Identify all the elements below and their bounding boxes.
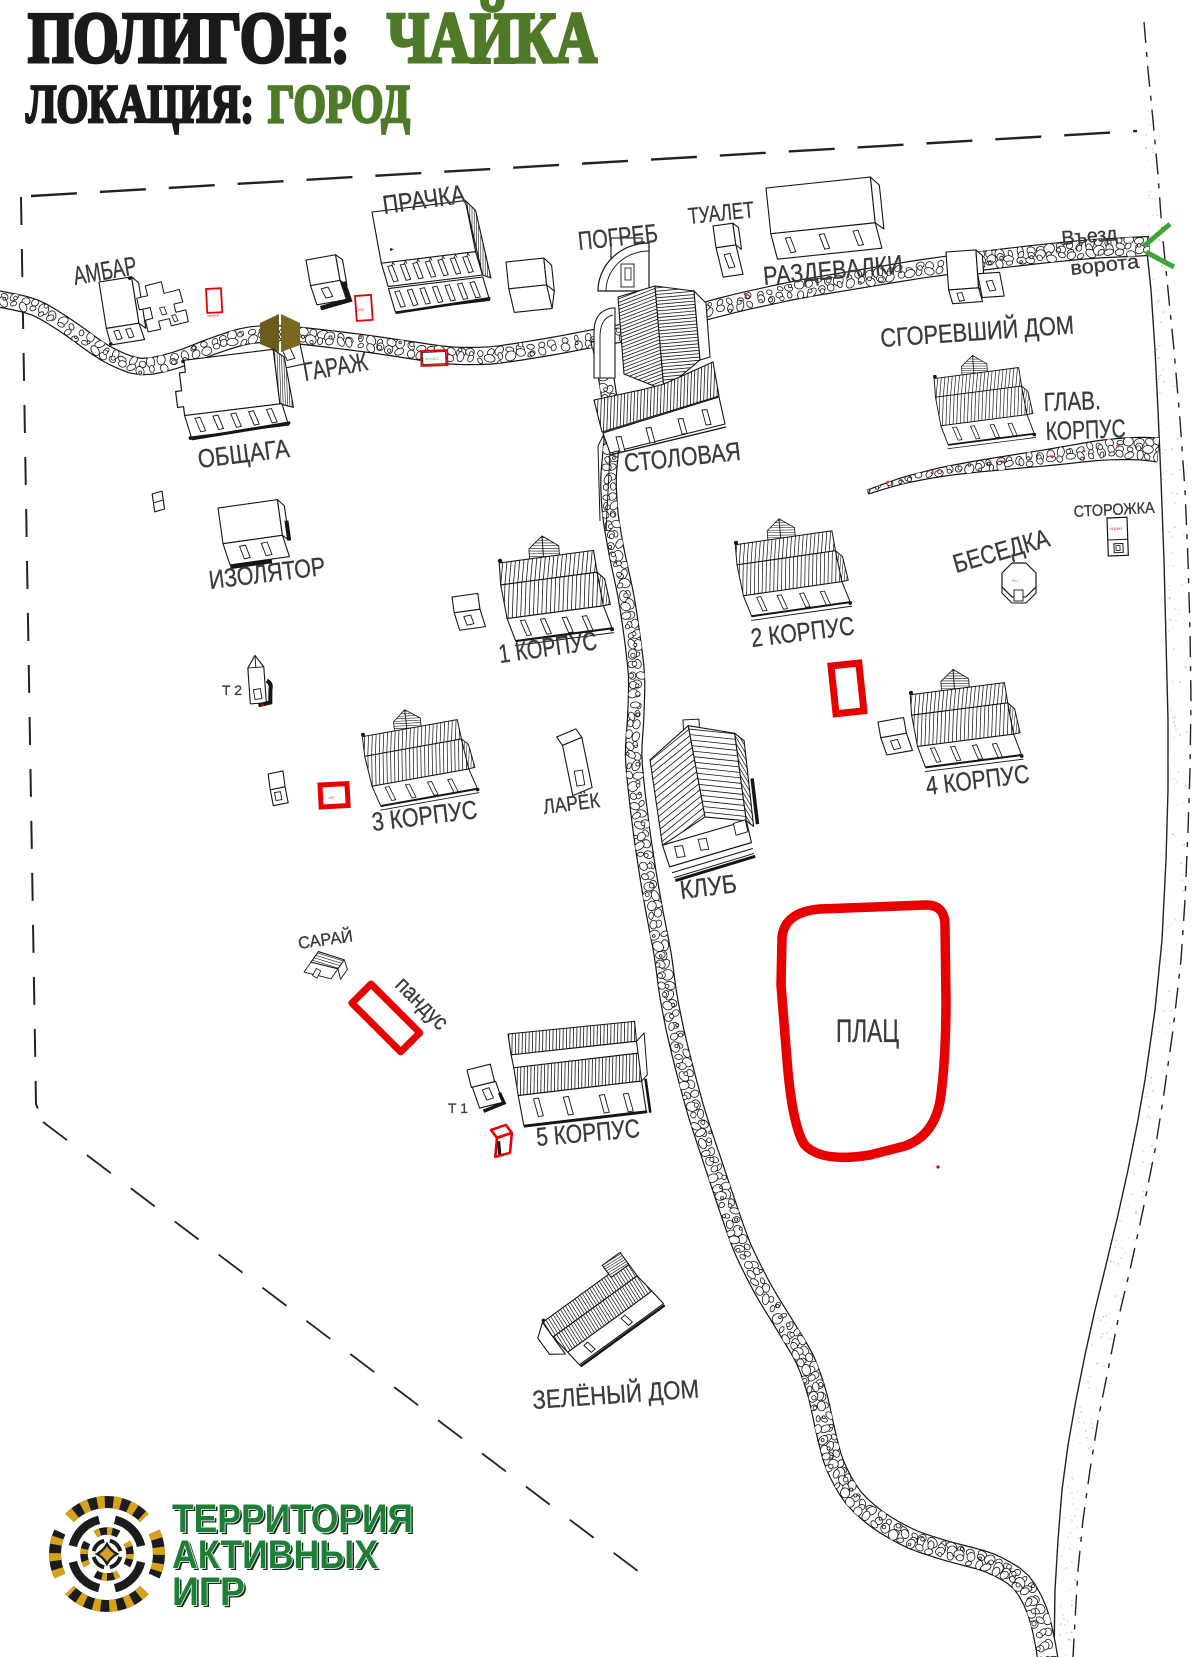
svg-text:бес: бес: [1012, 578, 1018, 583]
svg-text:Т 2: Т 2: [222, 682, 242, 698]
svg-text:ИГР: ИГР: [172, 1570, 245, 1614]
svg-text:охрана: охрана: [1109, 525, 1122, 530]
svg-text:колодец: колодец: [425, 355, 440, 360]
svg-text:ГЛАВ.: ГЛАВ.: [1043, 385, 1101, 417]
svg-text:КОРПУС: КОРПУС: [1045, 413, 1126, 446]
svg-text:ЧАЙКА: ЧАЙКА: [387, 0, 597, 78]
svg-text:лёд: лёд: [358, 306, 364, 311]
svg-text:Т 1: Т 1: [448, 1100, 468, 1116]
svg-text:ГОРОД: ГОРОД: [268, 74, 410, 134]
svg-text:ПОЛИГОН:: ПОЛИГОН:: [28, 0, 350, 78]
svg-text:ПЛАЦ: ПЛАЦ: [836, 1013, 899, 1049]
svg-text:дот: дот: [329, 794, 335, 799]
svg-text:ЛОКАЦИЯ:: ЛОКАЦИЯ:: [26, 74, 254, 134]
svg-text:погреб: погреб: [207, 312, 219, 318]
